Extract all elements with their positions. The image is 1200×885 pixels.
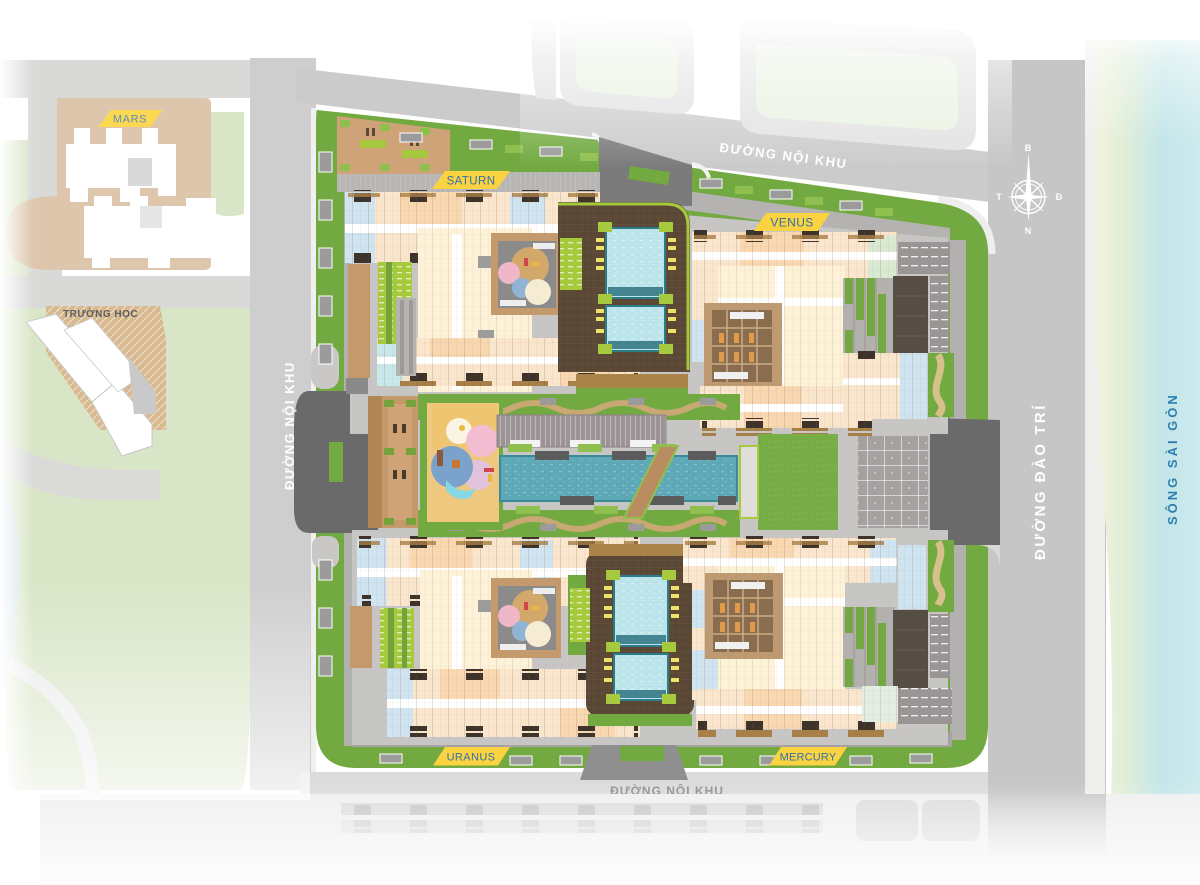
svg-text:N: N: [1025, 226, 1032, 236]
svg-text:TRƯỜNG HỌC: TRƯỜNG HỌC: [63, 307, 138, 320]
svg-text:MARS: MARS: [113, 114, 147, 126]
svg-text:MERCURY: MERCURY: [780, 752, 837, 764]
svg-text:ĐƯỜNG ĐÀO TRÍ: ĐƯỜNG ĐÀO TRÍ: [1031, 403, 1049, 560]
svg-text:ĐƯỜNG NỘI KHU: ĐƯỜNG NỘI KHU: [282, 361, 297, 490]
svg-text:Đ: Đ: [1056, 192, 1063, 202]
svg-text:SÔNG SÀI GÒN: SÔNG SÀI GÒN: [1165, 392, 1180, 525]
svg-text:SATURN: SATURN: [447, 176, 496, 188]
svg-text:VENUS: VENUS: [770, 216, 813, 230]
svg-text:URANUS: URANUS: [447, 752, 496, 764]
svg-text:B: B: [1025, 143, 1032, 153]
svg-text:T: T: [996, 192, 1002, 202]
